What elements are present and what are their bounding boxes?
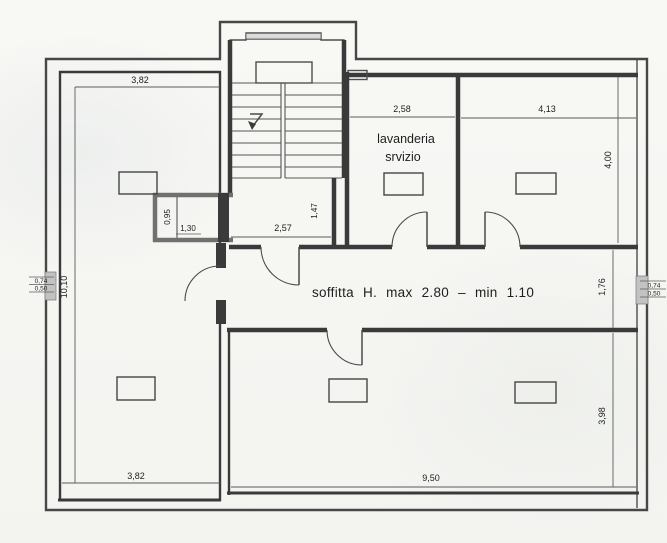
dim-bottom-room-width: 9,50 <box>422 473 440 483</box>
wall-chunk <box>216 243 226 268</box>
skylight <box>516 173 556 194</box>
dim-corridor-depth: 1,76 <box>597 278 607 296</box>
door-arc-left-room <box>185 266 220 301</box>
skylight <box>117 377 155 400</box>
stairwell-top-window <box>246 34 321 40</box>
dim-right-room-width: 4,13 <box>538 104 556 114</box>
dim-window-left-width: 0,74 <box>35 278 48 285</box>
skylight <box>329 379 367 402</box>
wall-chunk <box>216 300 226 324</box>
room-left-walls <box>58 71 226 501</box>
laundry-room-label-line2: srvizio <box>385 150 420 164</box>
room-bottom-walls <box>227 328 639 495</box>
dim-closet-width: 1,30 <box>180 224 196 233</box>
dim-right-room-depth: 4,00 <box>603 151 613 169</box>
stair-treads <box>232 83 342 178</box>
dim-hall-depth: 1,47 <box>310 203 319 219</box>
dim-hall-width: 2,57 <box>274 223 292 233</box>
dim-left-width-top: 3,82 <box>131 75 149 85</box>
dim-left-width-bottom: 3,82 <box>127 471 145 481</box>
door-arc-right-room <box>485 212 520 247</box>
door-arc-laundry <box>392 212 427 247</box>
skylight <box>515 382 556 403</box>
window-right-glass <box>636 276 648 304</box>
closet-right-wall <box>218 193 229 242</box>
floor-plan-drawing: 0,74 0,50 0,74 0,50 3,82 10,10 3,82 2,58… <box>0 0 667 543</box>
dim-laundry-width: 2,58 <box>393 104 411 114</box>
dim-window-right-width: 0,74 <box>648 283 661 290</box>
dim-left-height: 10,10 <box>59 276 69 299</box>
dim-bottom-room-depth: 3,98 <box>597 407 607 425</box>
skylight <box>384 173 423 195</box>
laundry-room-label-line1: lavanderia <box>377 132 435 146</box>
dim-window-left-sill: 0,50 <box>35 286 48 293</box>
scanned-floor-plan-page: 0,74 0,50 0,74 0,50 3,82 10,10 3,82 2,58… <box>0 0 667 543</box>
staircase <box>230 33 344 196</box>
dim-closet-depth: 0,95 <box>163 209 172 225</box>
window-right: 0,74 0,50 <box>636 276 666 304</box>
stair-direction-arrow-icon <box>248 114 262 130</box>
soffitta-note-label: soffitta H. max 2.80 – min 1.10 <box>312 285 534 300</box>
skylight <box>119 172 157 194</box>
window-left: 0,74 0,50 <box>29 272 56 300</box>
dim-window-right-sill: 0,50 <box>648 291 661 298</box>
door-arc-hall-corridor <box>261 247 299 285</box>
door-arc-bottom-room <box>327 330 362 365</box>
stair-landing-box <box>256 62 312 83</box>
